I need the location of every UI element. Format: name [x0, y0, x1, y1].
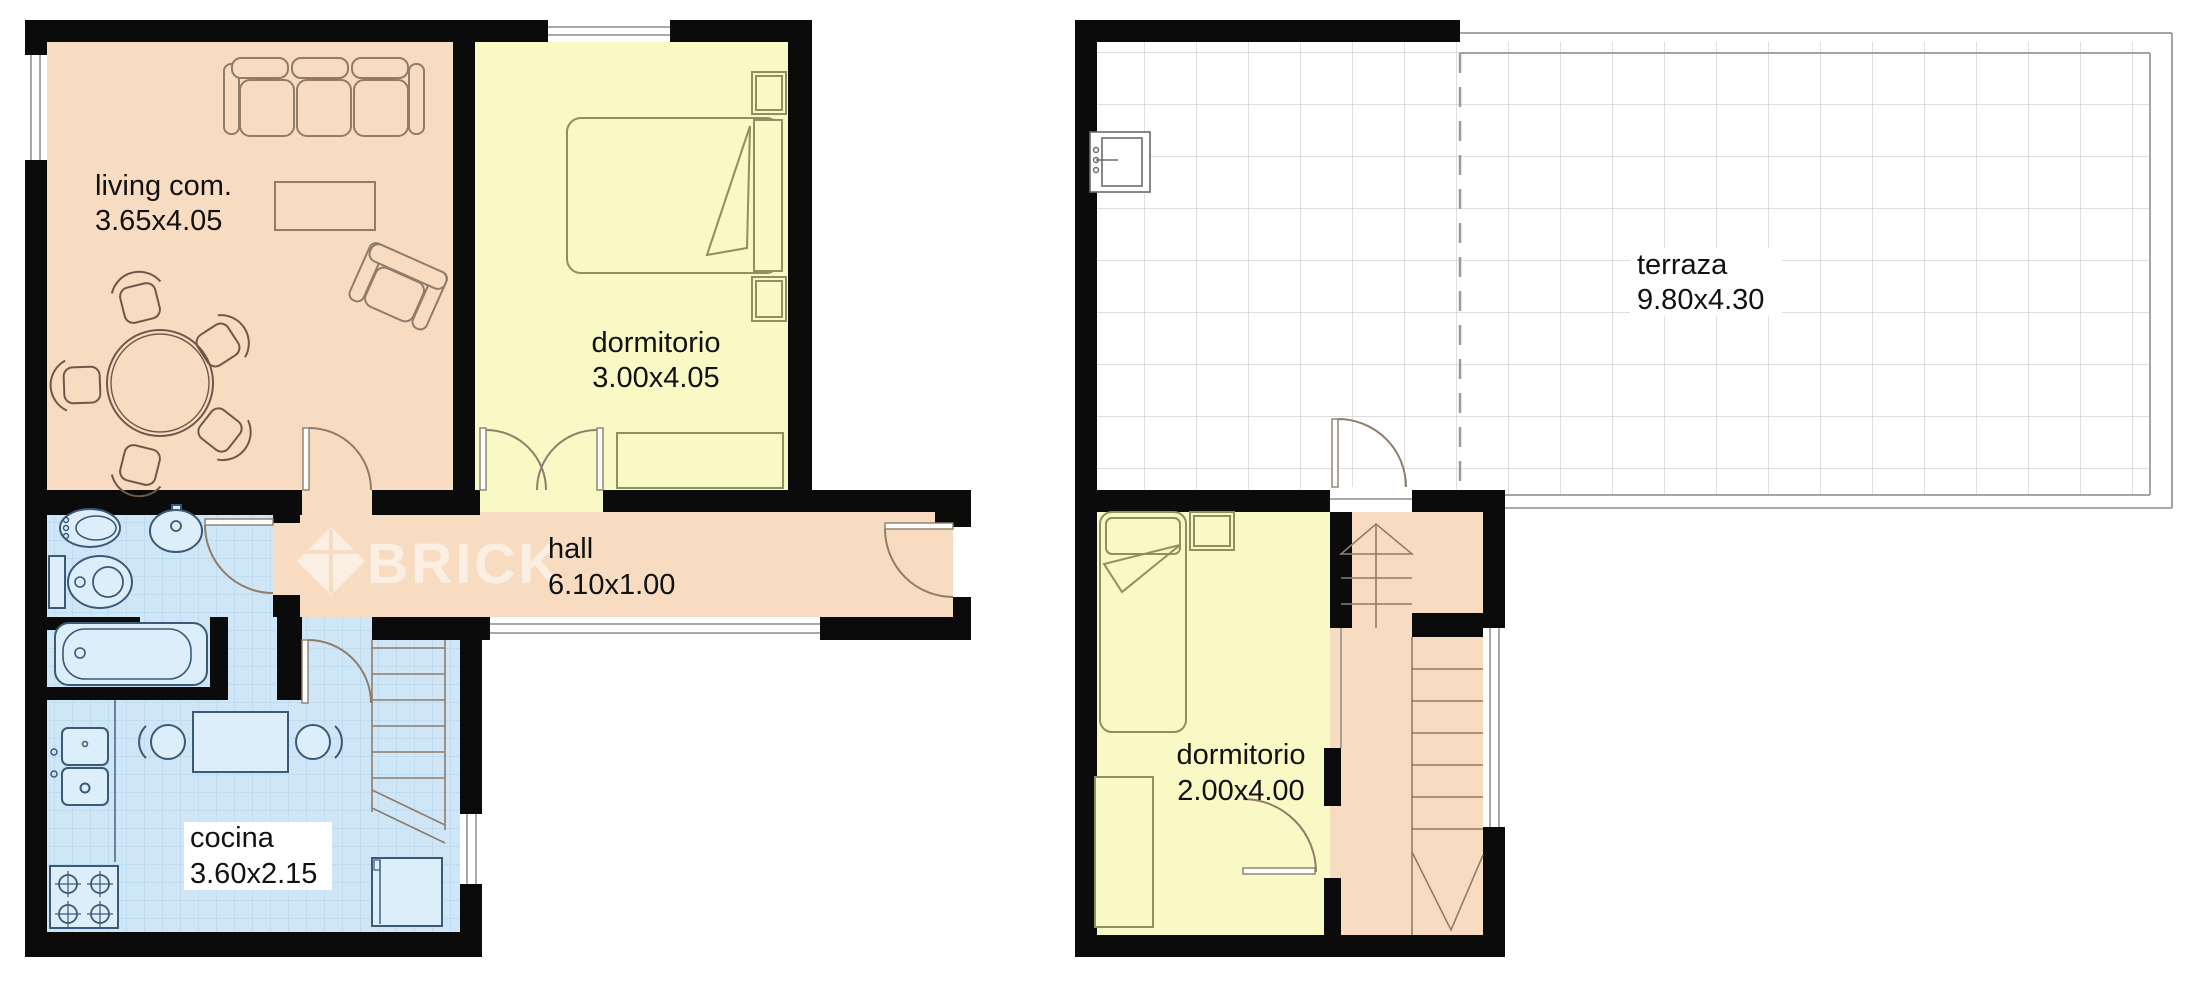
floorplan-page: BRICK living com. 3.65x4.05 dormitorio 3… — [0, 0, 2200, 983]
terrace-door-leaf — [1332, 419, 1338, 487]
hall-label: hall — [548, 533, 593, 565]
nightstand-top — [752, 72, 786, 114]
terrace-floor — [1097, 42, 2150, 495]
bedroom2-dims: 2.00x4.00 — [1177, 775, 1304, 807]
brick-watermark: BRICK — [297, 527, 563, 596]
terrace-label: terraza — [1637, 249, 1728, 281]
kitchen-door-leaf — [302, 640, 308, 703]
bedroom1-door-leaf-right — [597, 428, 603, 490]
bedroom2-door-leaf — [1243, 868, 1315, 874]
sofa — [224, 58, 424, 136]
stove — [50, 866, 118, 928]
kitchen-dims: 3.60x2.15 — [190, 858, 317, 890]
bathroom-door-leaf — [205, 519, 273, 525]
nightstand2 — [1190, 512, 1234, 550]
bedroom1-door-leaf-left — [480, 428, 486, 490]
kitchen-label: cocina — [190, 822, 275, 854]
floor2-plan: terraza 9.80x4.30 dormitorio 2.00x4.00 — [1075, 20, 2172, 957]
coffee-table — [275, 182, 375, 230]
nightstand-bottom — [752, 277, 786, 321]
entry-door-leaf — [885, 523, 953, 529]
hall-dims: 6.10x1.00 — [548, 569, 675, 601]
bedroom1-dims: 3.00x4.05 — [592, 362, 719, 394]
living-room-label: living com. — [95, 170, 232, 202]
toilet — [49, 556, 132, 608]
bed-double — [567, 118, 782, 273]
bedroom1-doorway-floor — [480, 490, 603, 512]
bathtub — [55, 623, 207, 685]
bidet — [60, 509, 120, 547]
floor1-plan: BRICK living com. 3.65x4.05 dormitorio 3… — [25, 20, 971, 957]
kitchen-doorzone-floor — [302, 617, 372, 700]
watermark-text: BRICK — [367, 532, 563, 596]
bedroom2-label: dormitorio — [1177, 739, 1306, 771]
terrace-sink — [1090, 132, 1150, 192]
living-doorway-floor — [302, 490, 372, 512]
bath-doorway-floor — [273, 523, 300, 595]
floorplan-drawing: BRICK living com. 3.65x4.05 dormitorio 3… — [0, 0, 2200, 983]
dresser — [617, 433, 783, 488]
bedroom1-label: dormitorio — [592, 327, 721, 359]
stair-core-floor — [1330, 512, 1483, 935]
bed-single — [1100, 512, 1186, 732]
living-door-leaf — [303, 428, 309, 490]
living-room-dims: 3.65x4.05 — [95, 205, 222, 237]
terrace-dims: 9.80x4.30 — [1637, 284, 1764, 316]
fridge — [372, 858, 442, 926]
wardrobe — [1095, 777, 1153, 927]
passage-floor — [228, 617, 277, 700]
